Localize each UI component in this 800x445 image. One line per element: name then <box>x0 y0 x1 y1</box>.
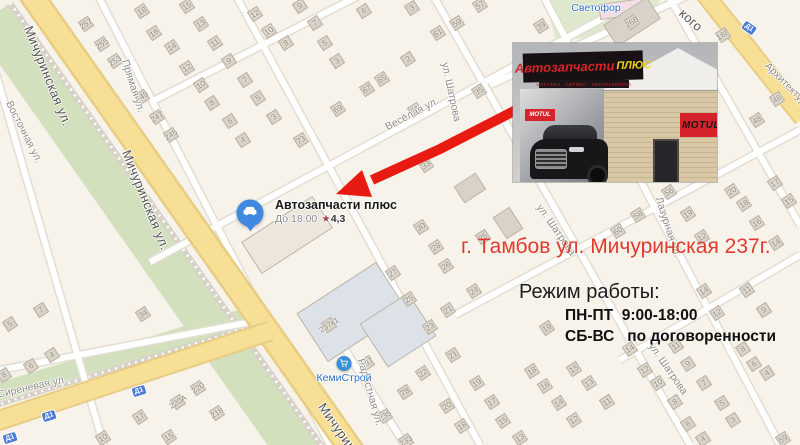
store-photo: MOTUL MOTUL Автозапчасти ПЛЮС МАГАЗИН · … <box>513 43 717 182</box>
schedule-title: Режим работы: <box>519 281 776 304</box>
schedule-weekdays: ПН-ПТ 9:00-18:00 <box>519 307 776 325</box>
photo-car-grille <box>535 149 567 169</box>
map-screenshot: 2572552532492472451816141210861513119751… <box>0 0 800 445</box>
signboard-subtitle: МАГАЗИН · СЕРВИС · АВТОРАЗБОРКА <box>539 80 629 88</box>
store-signboard: Автозапчасти ПЛЮС <box>523 50 644 82</box>
schedule-weekend: СБ-ВС по договоренности <box>519 328 776 346</box>
photo-car-headlight <box>569 147 584 152</box>
signboard-title: Автозапчасти <box>515 58 615 76</box>
address-annotation: г. Тамбов ул. Мичуринская 237г. <box>461 235 771 259</box>
motul-sign-left: MOTUL <box>525 109 555 121</box>
working-hours-annotation: Режим работы: ПН-ПТ 9:00-18:00 СБ-ВС по … <box>519 281 776 346</box>
photo-door-window <box>653 139 679 182</box>
signboard-plus: ПЛЮС <box>616 59 651 72</box>
motul-sign-right: MOTUL <box>680 113 717 137</box>
photo-car-wheel <box>587 165 608 182</box>
